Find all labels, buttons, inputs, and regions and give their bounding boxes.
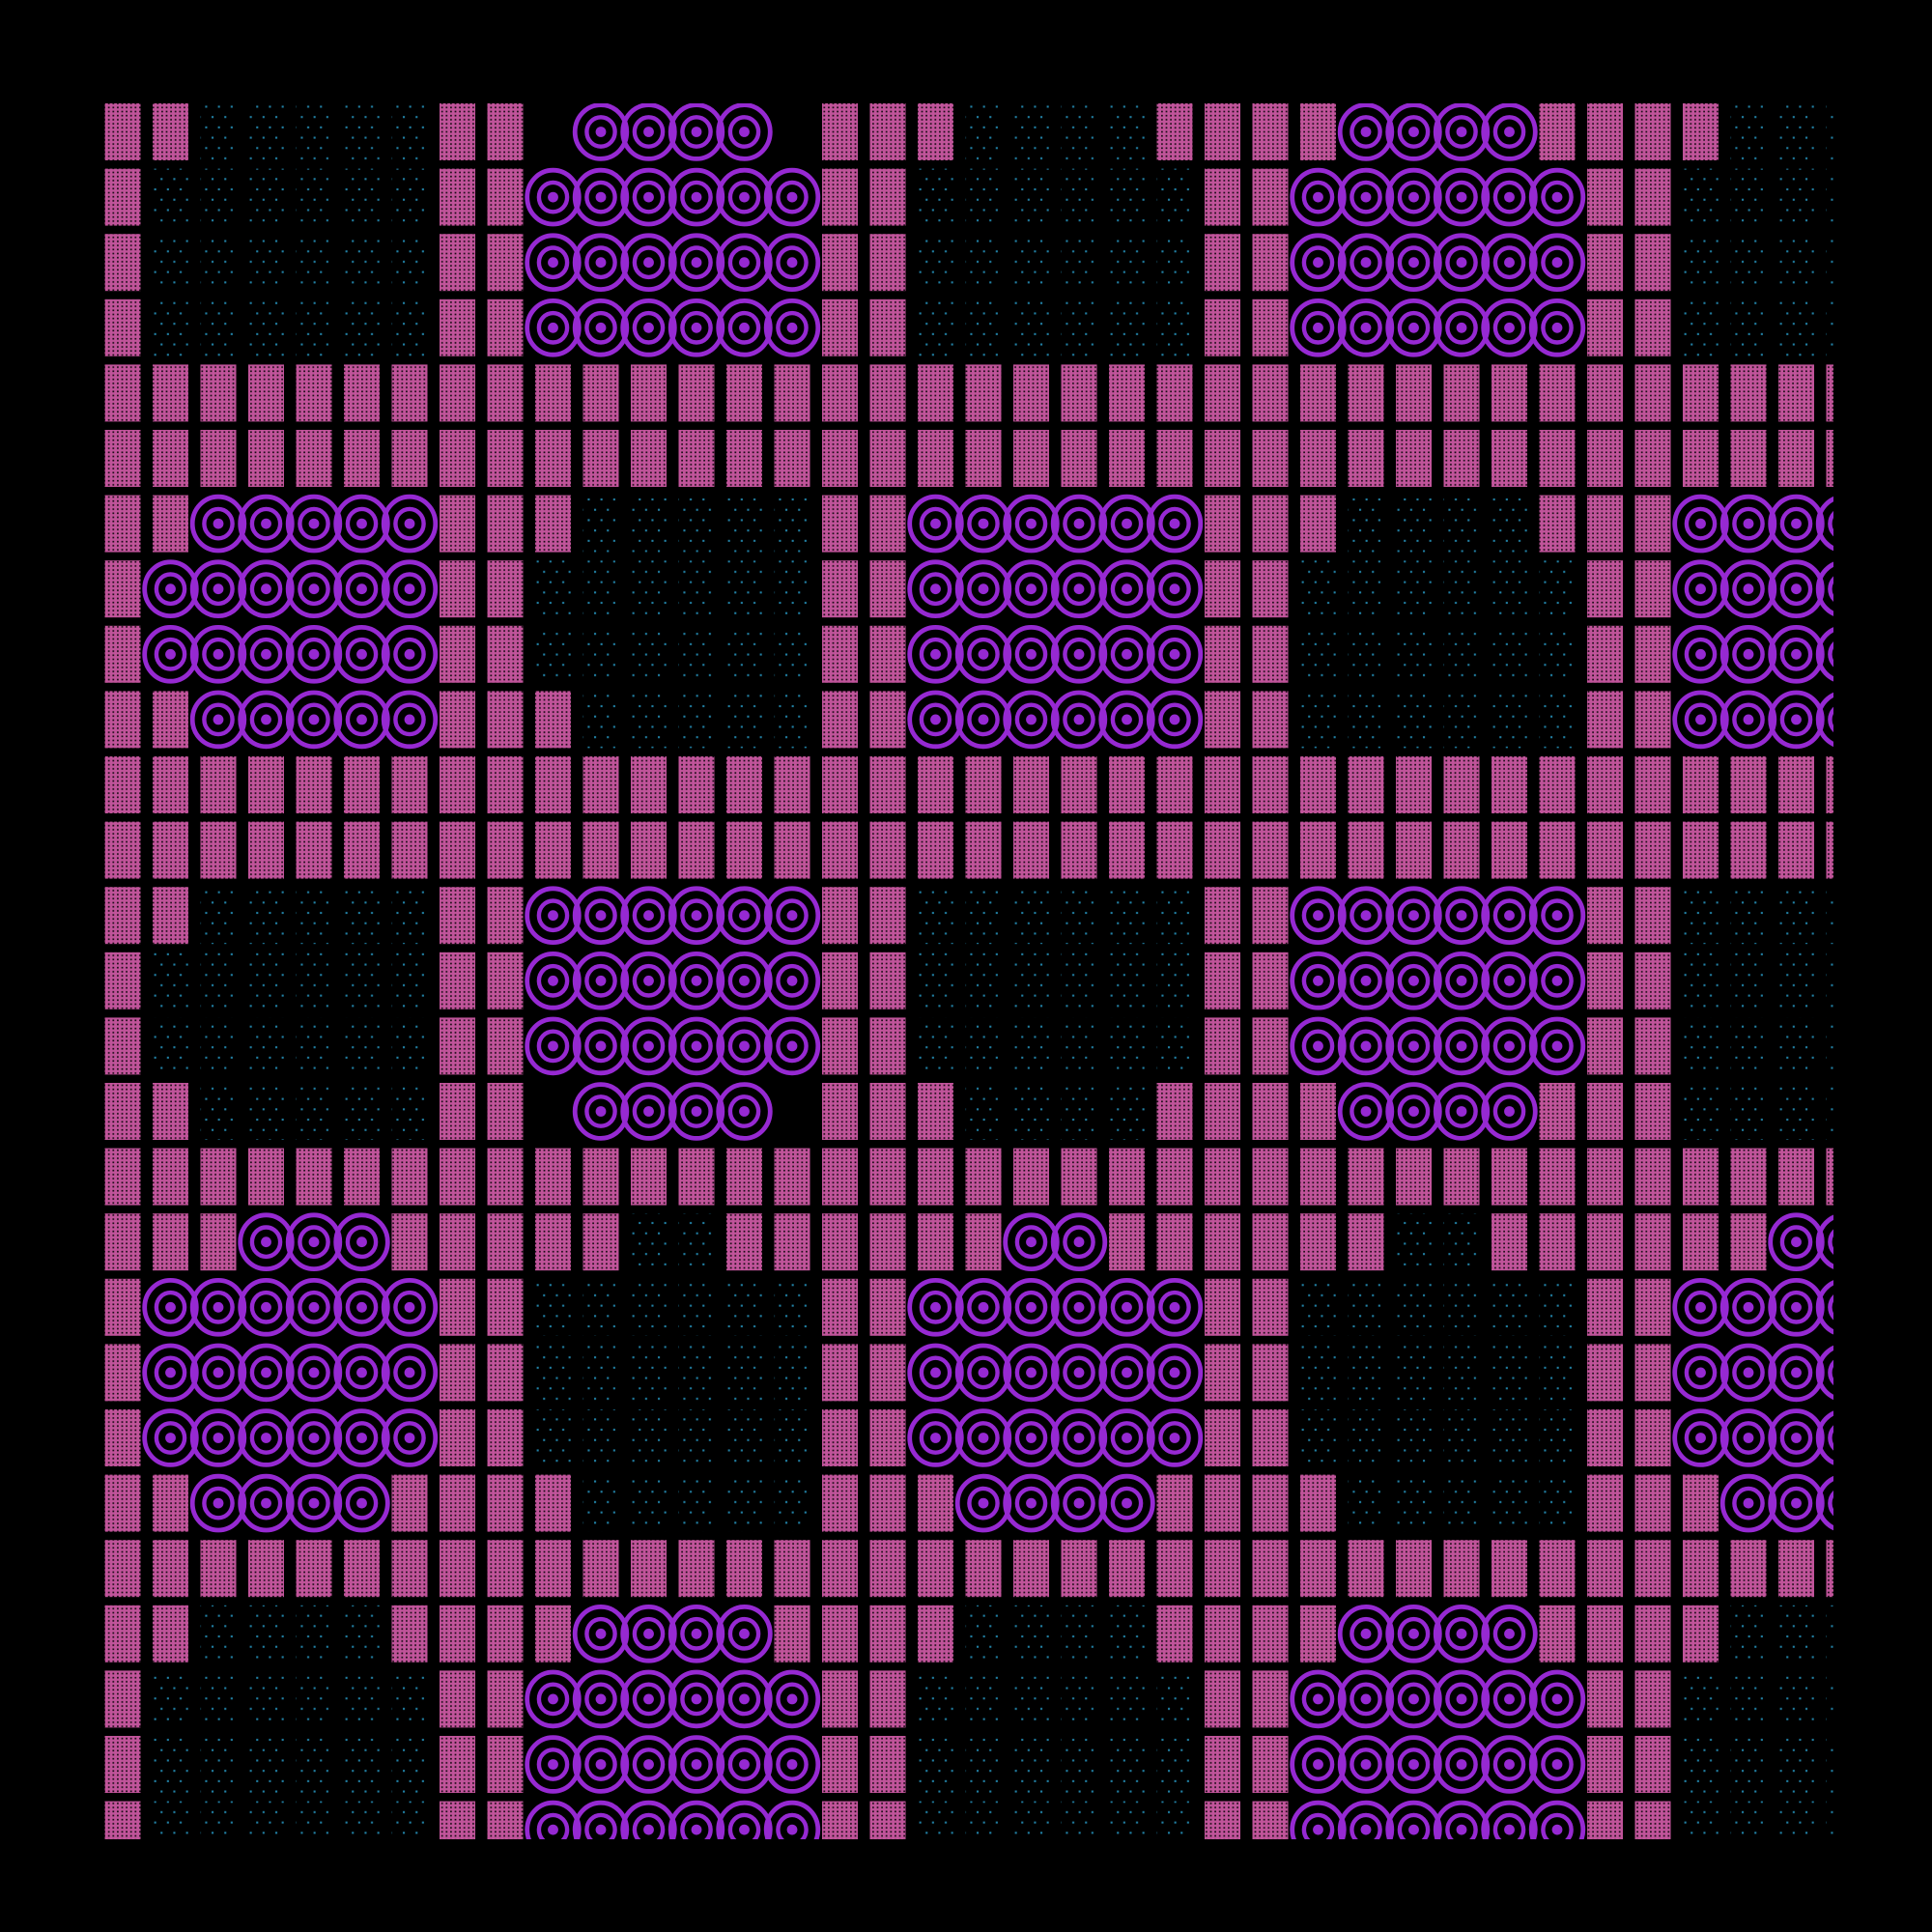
pattern-canvas-svg [0,0,1932,1932]
generative-plaid-pattern [0,0,1932,1932]
